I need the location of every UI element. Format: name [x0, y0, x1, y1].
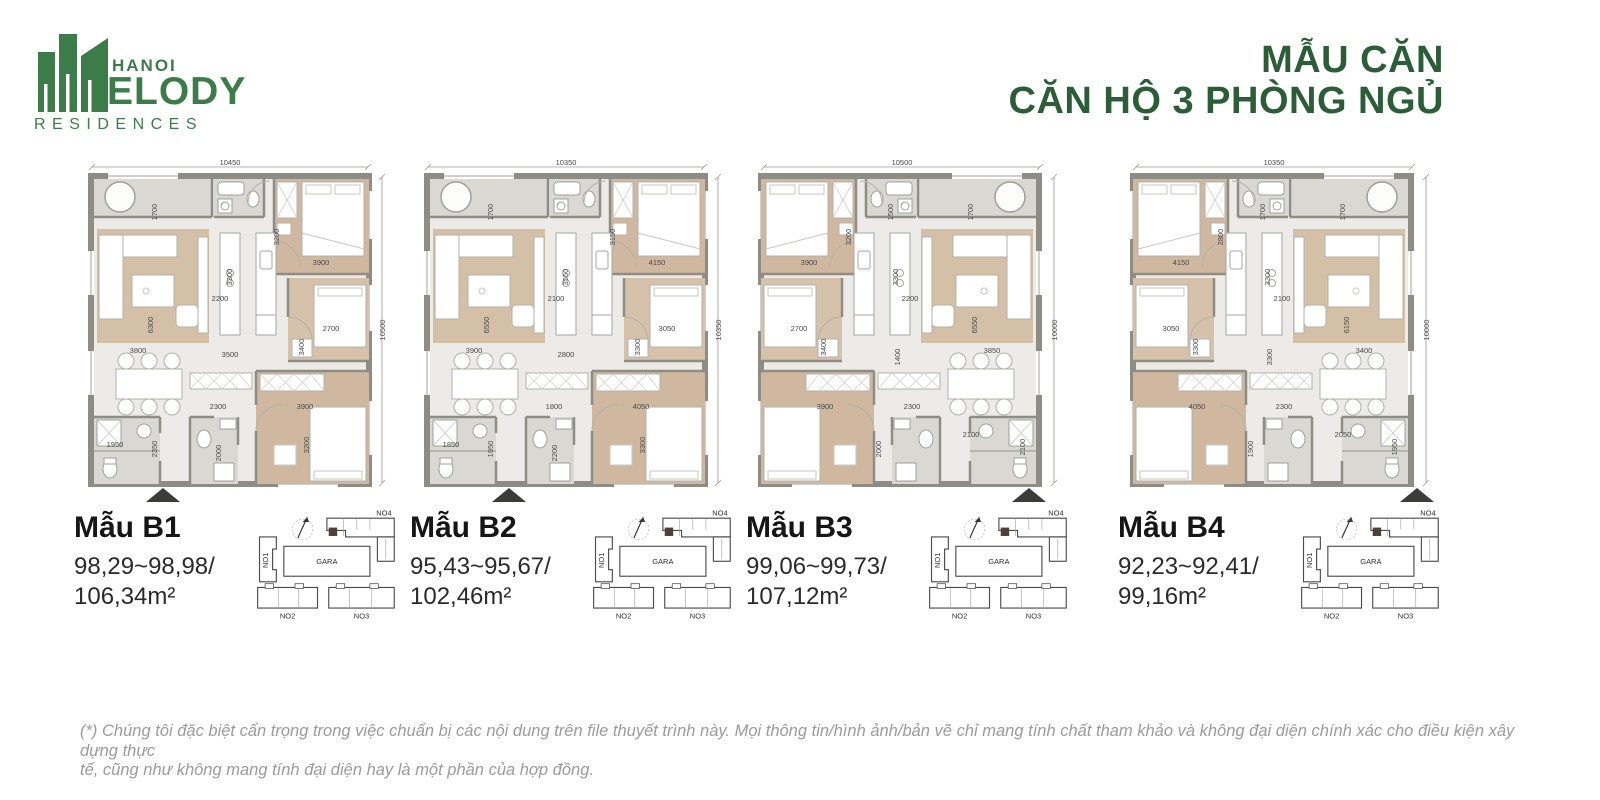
dim-label: 3150: [608, 229, 617, 246]
dim-label: 3050: [1163, 324, 1180, 333]
plan-name: Mẫu B3: [746, 511, 924, 545]
dim-label: 6150: [1342, 317, 1351, 334]
dim-label: 3300: [1265, 349, 1274, 366]
dim-label: 3400: [819, 339, 828, 356]
dim-label: 3500: [222, 350, 239, 359]
dim-label: 2000: [874, 441, 883, 458]
dim-label: 1950: [1390, 439, 1399, 456]
dim-label: 2350: [150, 441, 159, 458]
dim-label: 6300: [146, 317, 155, 334]
dim-label: 3300: [1263, 269, 1272, 286]
dim-label: 3400: [1356, 346, 1373, 355]
building-label-no1: NO1: [597, 553, 606, 568]
site-location-map: NO1 NO4 GARA NO2 NO3: [922, 507, 1072, 623]
entrance-arrow: [1400, 488, 1434, 502]
dim-label: 10350: [714, 320, 723, 341]
dim-label: 10000: [1050, 320, 1059, 341]
logo-text-melody: ELODY: [107, 70, 246, 114]
plan-area-range: 99,06~99,73/: [746, 552, 924, 582]
plan-area-total: 106,34m²: [74, 582, 252, 612]
dim-label: 3900: [297, 402, 314, 411]
site-location-map: NO1 NO4 GARA NO2 NO3: [586, 507, 736, 623]
building-label-no1: NO1: [1305, 553, 1314, 568]
dim-label: 3300: [638, 437, 647, 454]
plan-area-range: 92,23~92,41/: [1118, 552, 1296, 582]
building-label-no1: NO1: [261, 553, 270, 568]
dim-label: 3800: [130, 346, 147, 355]
site-location-map: NO1 NO4 GARA NO2 NO3: [250, 507, 400, 623]
plan-name: Mẫu B4: [1118, 511, 1296, 545]
dim-label: 1950: [486, 441, 495, 458]
dim-label: 3200: [302, 437, 311, 454]
dim-label: 4150: [1173, 258, 1190, 267]
page-title-line1: MẪU CĂN: [1009, 40, 1444, 81]
dim-label: 2200: [212, 294, 229, 303]
disclaimer-line1: (*) Chúng tôi đặc biệt cẩn trọng trong v…: [80, 722, 1540, 761]
dim-label: 10000: [1422, 320, 1431, 341]
dim-label: 3050: [659, 324, 676, 333]
dim-label: 2700: [323, 324, 340, 333]
dim-label: 3300: [891, 269, 900, 286]
disclaimer-line2: tế, cũng như không mang tính đại diện ha…: [80, 761, 1540, 781]
plan-name: Mẫu B2: [410, 511, 588, 545]
dim-label: 4150: [649, 258, 666, 267]
dim-label: 3900: [801, 258, 818, 267]
dim-label: 2200: [902, 294, 919, 303]
entrance-arrow: [492, 488, 526, 502]
page-title-line2: CĂN HỘ 3 PHÒNG NGỦ: [1009, 81, 1444, 122]
building-label-no4: NO4: [1048, 508, 1063, 517]
dim-label: 1700: [1258, 204, 1267, 221]
dim-label: 2100: [1018, 439, 1027, 456]
dim-label: 1950: [107, 440, 124, 449]
dim-label: 2300: [210, 402, 227, 411]
dim-label: 3900: [466, 346, 483, 355]
plan-name: Mẫu B1: [74, 511, 252, 545]
dim-label: 10500: [378, 320, 387, 341]
dim-label: 4050: [1189, 402, 1206, 411]
floor-plan-b1: 10450 10500 1700 3200 3900 2200 3300 630…: [68, 155, 398, 505]
dim-label: 2300: [904, 402, 921, 411]
dim-label: 3850: [984, 346, 1001, 355]
dim-label: 1900: [1246, 441, 1255, 458]
floor-plan-b3: 10500 10000 1700 3200 3900 2200 3300 655…: [740, 155, 1070, 505]
gara-label: GARA: [316, 557, 337, 566]
building-label-no4: NO4: [376, 508, 391, 517]
building-label-no2: NO2: [952, 611, 967, 620]
dim-label: 3550: [561, 269, 570, 286]
building-label-no2: NO2: [1324, 611, 1339, 620]
dim-label: 1700: [486, 204, 495, 221]
dim-label: 3300: [225, 269, 234, 286]
dim-label: 2000: [214, 445, 223, 462]
dim-label: 3200: [272, 229, 281, 246]
plan-area-total: 107,12m²: [746, 582, 924, 612]
dim-label: 2100: [548, 294, 565, 303]
logo: HANOI ELODY RESIDENCES: [36, 20, 286, 142]
dim-label: 2800: [1216, 229, 1225, 246]
building-label-no2: NO2: [280, 611, 295, 620]
floor-plan-b4: 10350 10000 1700 2800 4150 2100 3300 615…: [1112, 155, 1442, 505]
entrance-arrow: [1012, 488, 1046, 502]
dim-label: 3300: [633, 339, 642, 356]
dim-label: 3300: [1191, 339, 1200, 356]
gara-label: GARA: [988, 557, 1009, 566]
dim-label: 1800: [546, 402, 563, 411]
building-label-no4: NO4: [1420, 508, 1435, 517]
plan-area-range: 98,29~98,98/: [74, 552, 252, 582]
building-label-no1: NO1: [933, 553, 942, 568]
dim-label: 3200: [844, 229, 853, 246]
logo-buildings-icon: [38, 26, 108, 116]
disclaimer: (*) Chúng tôi đặc biệt cẩn trọng trong v…: [80, 722, 1540, 781]
floor-plan-b2: 10350 10350 1700 3150 4150 2100 3550 655…: [404, 155, 734, 505]
building-label-no3: NO3: [690, 611, 705, 620]
dim-label: 10350: [1264, 158, 1285, 167]
dim-label: 3400: [297, 339, 306, 356]
gara-label: GARA: [1360, 557, 1381, 566]
brochure-page: HANOI ELODY RESIDENCES MẪU CĂN CĂN HỘ 3 …: [0, 0, 1600, 800]
dim-label: 1700: [1338, 204, 1347, 221]
dim-label: 1850: [443, 440, 460, 449]
dim-label: 2700: [791, 324, 808, 333]
gara-label: GARA: [652, 557, 673, 566]
site-location-map: NO1 NO4 GARA NO2 NO3: [1294, 507, 1444, 623]
dim-label: 3900: [313, 258, 330, 267]
plan-area-total: 99,16m²: [1118, 582, 1296, 612]
building-label-no3: NO3: [354, 611, 369, 620]
dim-label: 1700: [150, 204, 159, 221]
dim-label: 1700: [966, 204, 975, 221]
entrance-arrow: [146, 488, 180, 502]
dim-label: 2050: [1335, 430, 1352, 439]
plan-block-b4: 10350 10000 1700 2800 4150 2100 3300 615…: [1112, 155, 1444, 635]
dim-label: 10450: [220, 158, 241, 167]
building-label-no2: NO2: [616, 611, 631, 620]
plan-block-b3: 10500 10000 1700 3200 3900 2200 3300 655…: [740, 155, 1072, 635]
building-label-no4: NO4: [712, 508, 727, 517]
plan-block-b2: 10350 10350 1700 3150 4150 2100 3550 655…: [404, 155, 736, 635]
plan-area-total: 102,46m²: [410, 582, 588, 612]
dim-label: 4050: [633, 402, 650, 411]
dim-label: 10350: [556, 158, 577, 167]
logo-text-residences: RESIDENCES: [34, 116, 203, 134]
plan-block-b1: 10450 10500 1700 3200 3900 2200 3300 630…: [68, 155, 400, 635]
dim-label: 2200: [550, 445, 559, 462]
building-label-no3: NO3: [1398, 611, 1413, 620]
dim-label: 6550: [970, 317, 979, 334]
dim-label: 2300: [1276, 402, 1293, 411]
dim-label: 2100: [963, 430, 980, 439]
dim-label: 10500: [892, 158, 913, 167]
dim-label: 1400: [893, 349, 902, 366]
dim-label: 3900: [817, 402, 834, 411]
building-label-no3: NO3: [1026, 611, 1041, 620]
page-title: MẪU CĂN CĂN HỘ 3 PHÒNG NGỦ: [1009, 40, 1444, 122]
dim-label: 6550: [482, 317, 491, 334]
plan-area-range: 95,43~95,67/: [410, 552, 588, 582]
dim-label: 1500: [886, 204, 895, 221]
dim-label: 2800: [558, 350, 575, 359]
dim-label: 2100: [1274, 294, 1291, 303]
